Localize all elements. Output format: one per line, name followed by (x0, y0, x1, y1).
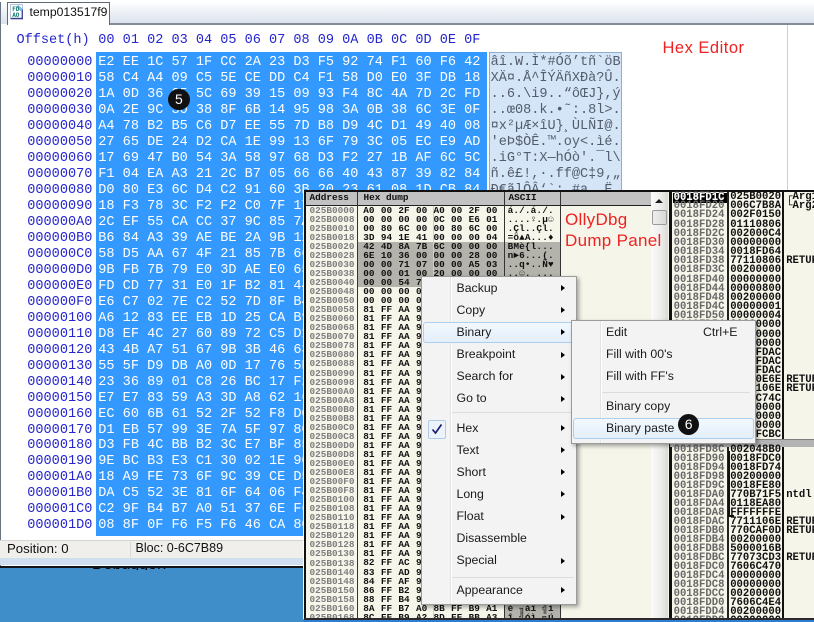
svg-text:AO: AO (12, 12, 20, 19)
